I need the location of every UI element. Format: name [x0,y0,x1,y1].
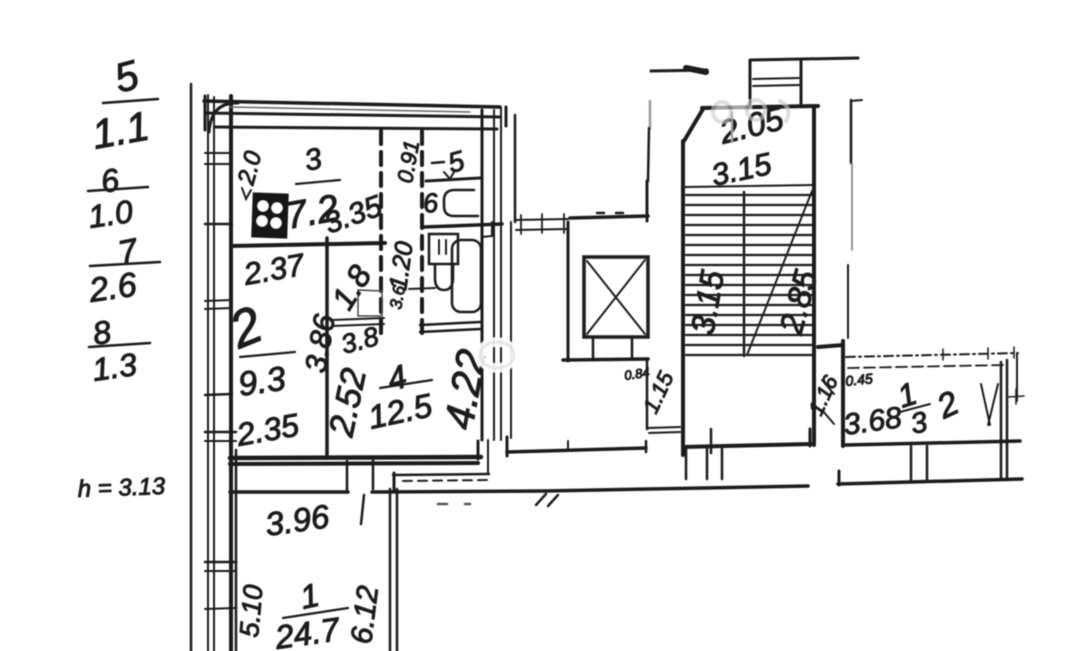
svg-text:1.0: 1.0 [86,193,135,235]
svg-text:2.85: 2.85 [772,266,825,339]
svg-text:2.6: 2.6 [86,266,139,310]
svg-text:3.96: 3.96 [263,497,332,543]
svg-text:1: 1 [297,576,323,616]
svg-text:24.7: 24.7 [272,610,343,651]
svg-text:2.35: 2.35 [233,407,302,453]
svg-text:5.10: 5.10 [234,584,268,639]
svg-text:1.8: 1.8 [324,259,378,316]
svg-text:12.5: 12.5 [365,386,436,436]
svg-text:2.0: 2.0 [232,148,267,189]
svg-text:2.37: 2.37 [240,247,308,292]
svg-text:0.45: 0.45 [845,370,874,389]
svg-text:3.15: 3.15 [683,267,731,337]
svg-text:5: 5 [109,51,143,101]
svg-text:6: 6 [421,187,440,219]
svg-text:5: 5 [445,145,468,179]
svg-text:6.12: 6.12 [345,584,385,646]
svg-text:9.3: 9.3 [236,360,288,404]
svg-text:3.8: 3.8 [338,321,382,360]
svg-text:4.22: 4.22 [436,346,495,433]
svg-text:1.1: 1.1 [89,103,153,158]
svg-text:1.3: 1.3 [90,346,139,388]
svg-text:2: 2 [221,295,271,360]
svg-text:0.91: 0.91 [392,138,424,185]
svg-text:3: 3 [302,142,325,178]
svg-text:h = 3.13: h = 3.13 [77,473,166,503]
svg-text:3: 3 [908,406,930,441]
svg-text:3.68: 3.68 [841,401,904,442]
svg-text:3.6: 3.6 [386,284,409,311]
svg-text:2: 2 [930,384,964,427]
